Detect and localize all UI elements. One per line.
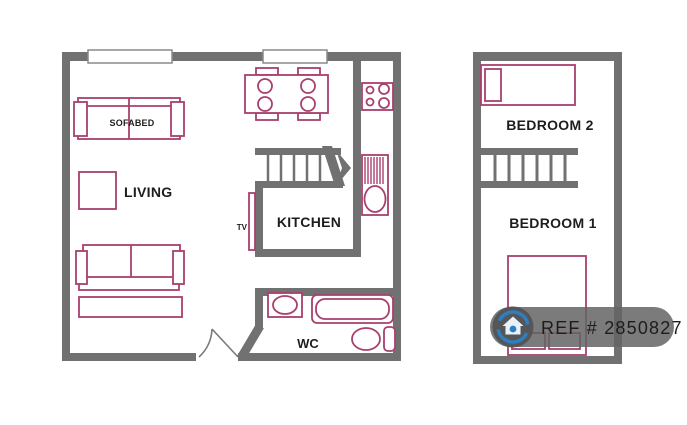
bedroom1-label: BEDROOM 1 (509, 215, 597, 231)
wc-sink (268, 293, 302, 317)
wall (238, 353, 401, 361)
living-label: LIVING (124, 184, 172, 200)
staircase-ground (255, 146, 351, 188)
window (263, 50, 327, 63)
wall (255, 249, 361, 257)
floorplan-page: SOFABED LIVING TV KITCHEN WC (0, 0, 687, 425)
window (88, 50, 172, 63)
sofabed-label: SOFABED (110, 118, 155, 128)
wall (255, 183, 263, 257)
wc-label: WC (297, 336, 319, 351)
wall (353, 58, 361, 257)
wall (393, 52, 401, 361)
kitchen-label: KITCHEN (277, 214, 341, 230)
coffee-table (79, 297, 182, 317)
ground-floor-plan: SOFABED LIVING TV KITCHEN WC (62, 50, 401, 361)
tv (249, 193, 255, 250)
single-bed (481, 65, 575, 105)
ref-number: REF # 2850827 (541, 318, 683, 338)
staircase-first (481, 148, 578, 188)
wall (473, 52, 481, 364)
bathtub (312, 295, 393, 323)
wall (473, 52, 622, 61)
dining-table (245, 75, 328, 113)
sofa (76, 245, 184, 290)
toilet (352, 327, 395, 351)
ground-floor-furniture (74, 68, 395, 351)
entrance-door (199, 329, 238, 357)
wall (473, 356, 622, 364)
wall (255, 288, 263, 328)
stove (362, 83, 393, 110)
side-table (79, 172, 116, 209)
tv-label: TV (237, 223, 248, 232)
wall (62, 52, 70, 361)
watermark: REF # 2850827 (490, 307, 683, 348)
floorplan-image: SOFABED LIVING TV KITCHEN WC (0, 0, 687, 425)
kitchen-sink (362, 155, 388, 215)
house-door-dot (510, 326, 517, 333)
door-swing-arc (199, 329, 212, 357)
door-leaf (212, 329, 238, 357)
bedroom2-label: BEDROOM 2 (506, 117, 594, 133)
wall (62, 353, 196, 361)
circular-arrows-house-icon (493, 307, 534, 348)
